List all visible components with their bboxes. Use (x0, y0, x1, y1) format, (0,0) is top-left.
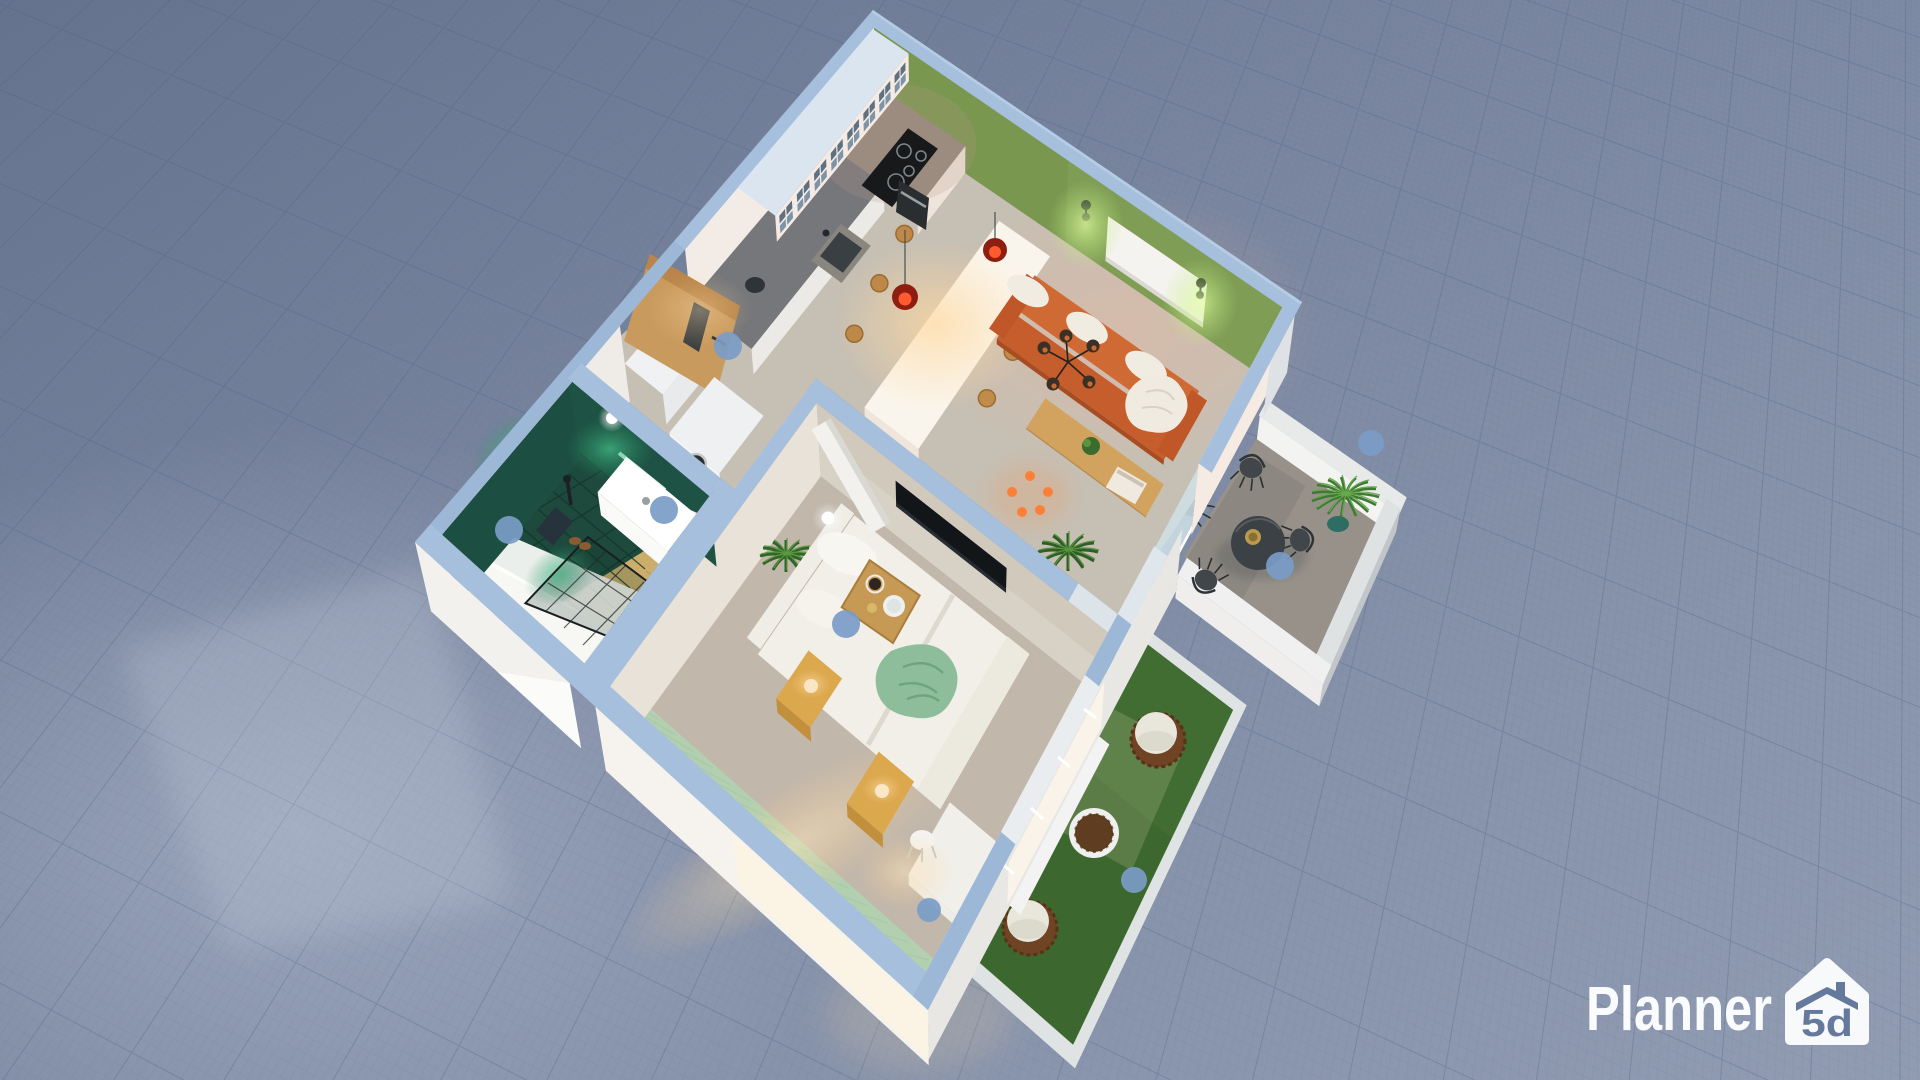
svg-text:Planner: Planner (1586, 975, 1772, 1044)
svg-text:5d: 5d (1801, 1003, 1853, 1045)
